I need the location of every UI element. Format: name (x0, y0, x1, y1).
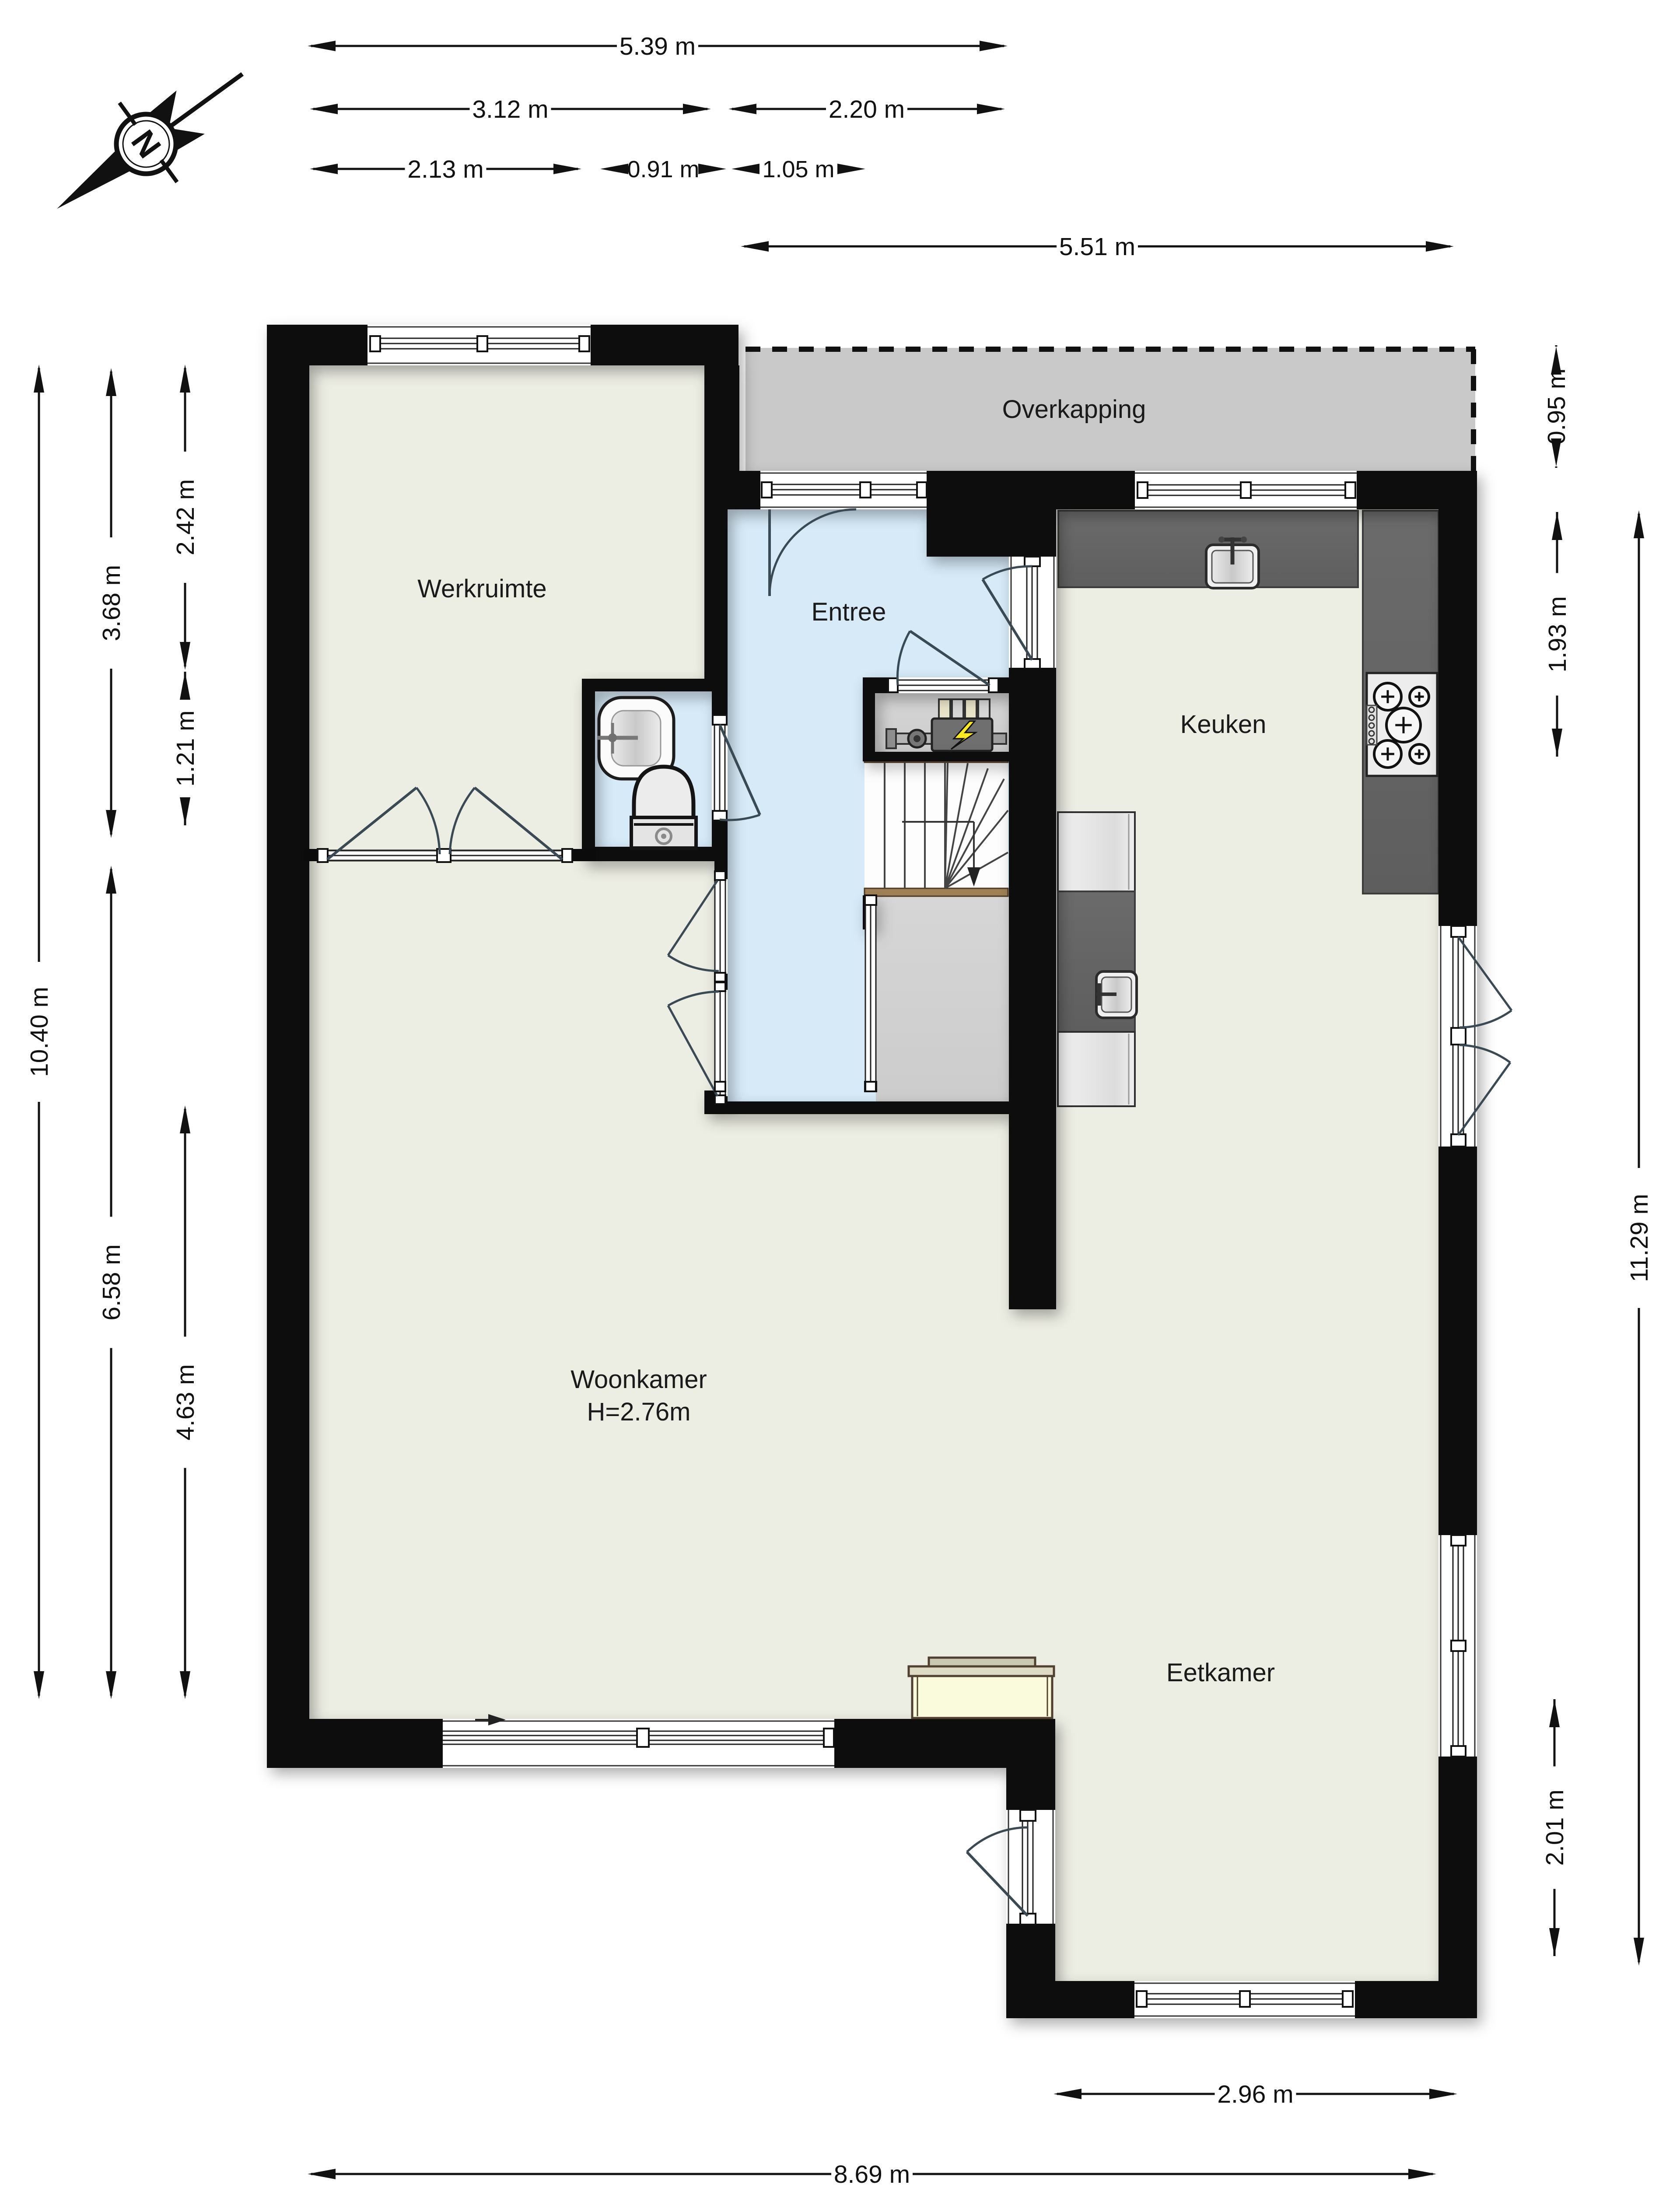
svg-text:Eetkamer: Eetkamer (1166, 1659, 1275, 1687)
svg-text:Overkapping: Overkapping (1002, 395, 1146, 424)
svg-text:2.42 m: 2.42 m (171, 479, 199, 555)
svg-text:1.93 m: 1.93 m (1543, 596, 1571, 672)
svg-text:H=2.76m: H=2.76m (587, 1398, 691, 1426)
svg-text:2.13 m: 2.13 m (407, 155, 483, 183)
svg-text:Werkruimte: Werkruimte (417, 575, 546, 603)
svg-text:5.39 m: 5.39 m (619, 32, 696, 60)
svg-text:4.63 m: 4.63 m (171, 1364, 199, 1440)
svg-text:2.96 m: 2.96 m (1217, 2080, 1293, 2108)
svg-text:2.20 m: 2.20 m (829, 95, 905, 123)
svg-text:10.40 m: 10.40 m (25, 987, 53, 1077)
svg-text:8.69 m: 8.69 m (834, 2160, 910, 2188)
svg-text:1.05 m: 1.05 m (762, 156, 834, 182)
svg-text:11.29 m: 11.29 m (1625, 1194, 1653, 1282)
svg-text:Keuken: Keuken (1180, 710, 1267, 739)
svg-text:0.95 m: 0.95 m (1543, 368, 1571, 445)
svg-text:3.68 m: 3.68 m (98, 565, 126, 641)
svg-text:Woonkamer: Woonkamer (570, 1365, 707, 1394)
svg-text:0.91 m: 0.91 m (627, 156, 699, 182)
svg-text:2.01 m: 2.01 m (1541, 1789, 1569, 1865)
svg-text:1.21 m: 1.21 m (171, 710, 199, 786)
svg-text:Entree: Entree (812, 598, 886, 626)
svg-text:5.51 m: 5.51 m (1059, 233, 1135, 261)
svg-text:3.12 m: 3.12 m (472, 95, 548, 123)
svg-text:6.58 m: 6.58 m (98, 1244, 126, 1320)
